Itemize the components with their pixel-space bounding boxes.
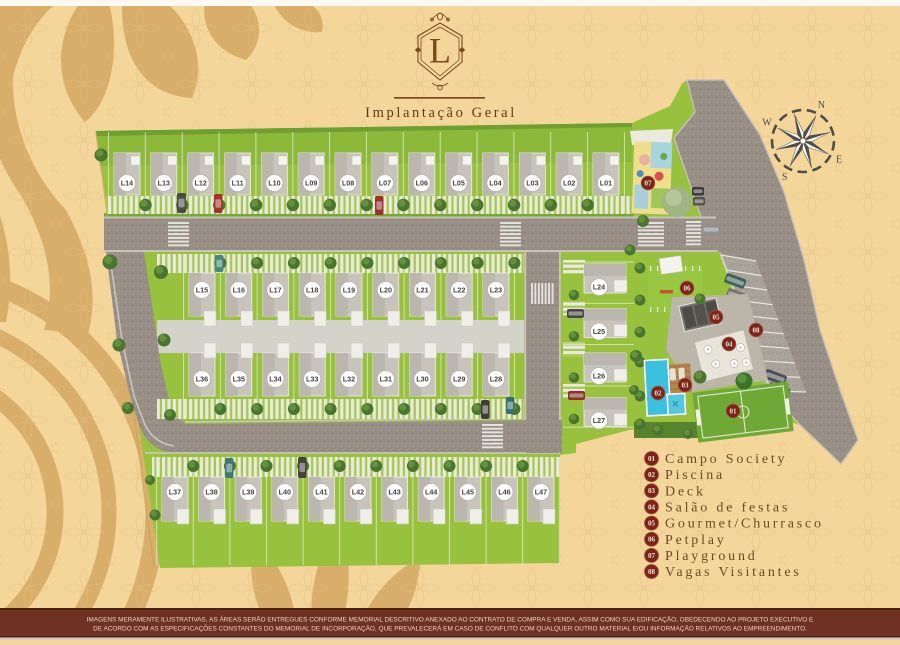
svg-text:03: 03	[682, 381, 690, 389]
svg-text:06: 06	[648, 536, 656, 544]
svg-text:08: 08	[753, 326, 761, 334]
svg-text:L40: L40	[279, 488, 291, 497]
svg-text:L39: L39	[242, 488, 254, 497]
svg-text:L19: L19	[343, 286, 355, 295]
svg-text:L12: L12	[195, 179, 207, 188]
svg-text:04: 04	[648, 503, 656, 511]
svg-text:L17: L17	[269, 286, 281, 295]
svg-text:L44: L44	[425, 488, 437, 497]
svg-text:L02: L02	[563, 179, 575, 188]
svg-text:Implantação Geral: Implantação Geral	[365, 105, 517, 121]
svg-text:L20: L20	[380, 286, 392, 295]
svg-text:L01: L01	[600, 179, 612, 188]
svg-text:Deck: Deck	[665, 484, 706, 499]
svg-text:L14: L14	[121, 179, 133, 188]
svg-text:L31: L31	[380, 375, 392, 384]
svg-text:L24: L24	[593, 283, 605, 292]
svg-text:L32: L32	[343, 375, 355, 384]
svg-text:S: S	[782, 172, 788, 183]
svg-text:L27: L27	[593, 416, 605, 425]
svg-text:05: 05	[648, 520, 656, 528]
svg-text:L36: L36	[196, 375, 208, 384]
svg-text:W: W	[762, 118, 772, 129]
svg-text:L38: L38	[205, 488, 217, 497]
svg-text:E: E	[836, 154, 842, 165]
svg-text:Piscina: Piscina	[665, 468, 725, 483]
svg-text:Salão de festas: Salão de festas	[665, 501, 790, 516]
svg-text:L28: L28	[490, 375, 502, 384]
svg-text:L41: L41	[315, 488, 327, 497]
svg-text:L10: L10	[268, 179, 280, 188]
svg-text:08: 08	[648, 568, 656, 576]
svg-text:L15: L15	[196, 286, 208, 295]
svg-text:L03: L03	[526, 179, 538, 188]
svg-text:Gourmet/Churrasco: Gourmet/Churrasco	[665, 517, 824, 532]
svg-text:DE ACORDO COM AS ESPECIFICAÇÕE: DE ACORDO COM AS ESPECIFICAÇÕES CONSTANT…	[93, 624, 807, 633]
svg-text:IMAGENS MERAMENTE ILUSTRATIVAS: IMAGENS MERAMENTE ILUSTRATIVAS, AS ÁREAS…	[87, 615, 814, 624]
svg-text:L11: L11	[232, 179, 244, 188]
svg-text:Petplay: Petplay	[665, 533, 727, 548]
svg-text:02: 02	[655, 389, 663, 397]
svg-text:L29: L29	[453, 375, 465, 384]
svg-text:L07: L07	[379, 179, 391, 188]
svg-text:L42: L42	[352, 488, 364, 497]
svg-text:07: 07	[648, 552, 656, 560]
svg-text:L46: L46	[498, 488, 510, 497]
svg-text:L34: L34	[269, 375, 281, 384]
svg-text:Playground: Playground	[665, 549, 758, 564]
svg-text:L08: L08	[342, 179, 354, 188]
svg-text:L25: L25	[593, 327, 605, 336]
svg-text:L26: L26	[593, 372, 605, 381]
svg-text:07: 07	[645, 179, 653, 187]
svg-text:L21: L21	[416, 286, 428, 295]
svg-text:L16: L16	[233, 286, 245, 295]
svg-text:L43: L43	[388, 488, 400, 497]
svg-text:L35: L35	[233, 375, 245, 384]
svg-text:Vagas Visitantes: Vagas Visitantes	[665, 565, 802, 580]
svg-text:L09: L09	[305, 179, 317, 188]
svg-text:L04: L04	[489, 179, 501, 188]
svg-text:Campo Society: Campo Society	[665, 452, 787, 467]
svg-text:04: 04	[726, 340, 734, 348]
svg-text:L13: L13	[158, 179, 170, 188]
svg-text:L: L	[429, 31, 451, 71]
svg-text:L23: L23	[490, 286, 502, 295]
svg-text:01: 01	[730, 407, 738, 415]
svg-text:L06: L06	[416, 179, 428, 188]
svg-text:L37: L37	[169, 488, 181, 497]
svg-text:L18: L18	[306, 286, 318, 295]
svg-text:02: 02	[648, 471, 656, 479]
svg-text:05: 05	[713, 313, 721, 321]
svg-text:L30: L30	[416, 375, 428, 384]
svg-text:01: 01	[648, 455, 656, 463]
svg-text:03: 03	[648, 487, 656, 495]
svg-text:06: 06	[684, 284, 692, 292]
svg-text:L22: L22	[453, 286, 465, 295]
svg-text:L45: L45	[462, 488, 474, 497]
svg-text:L47: L47	[535, 488, 547, 497]
svg-text:L33: L33	[306, 375, 318, 384]
svg-text:L05: L05	[453, 179, 465, 188]
svg-text:N: N	[818, 100, 825, 111]
